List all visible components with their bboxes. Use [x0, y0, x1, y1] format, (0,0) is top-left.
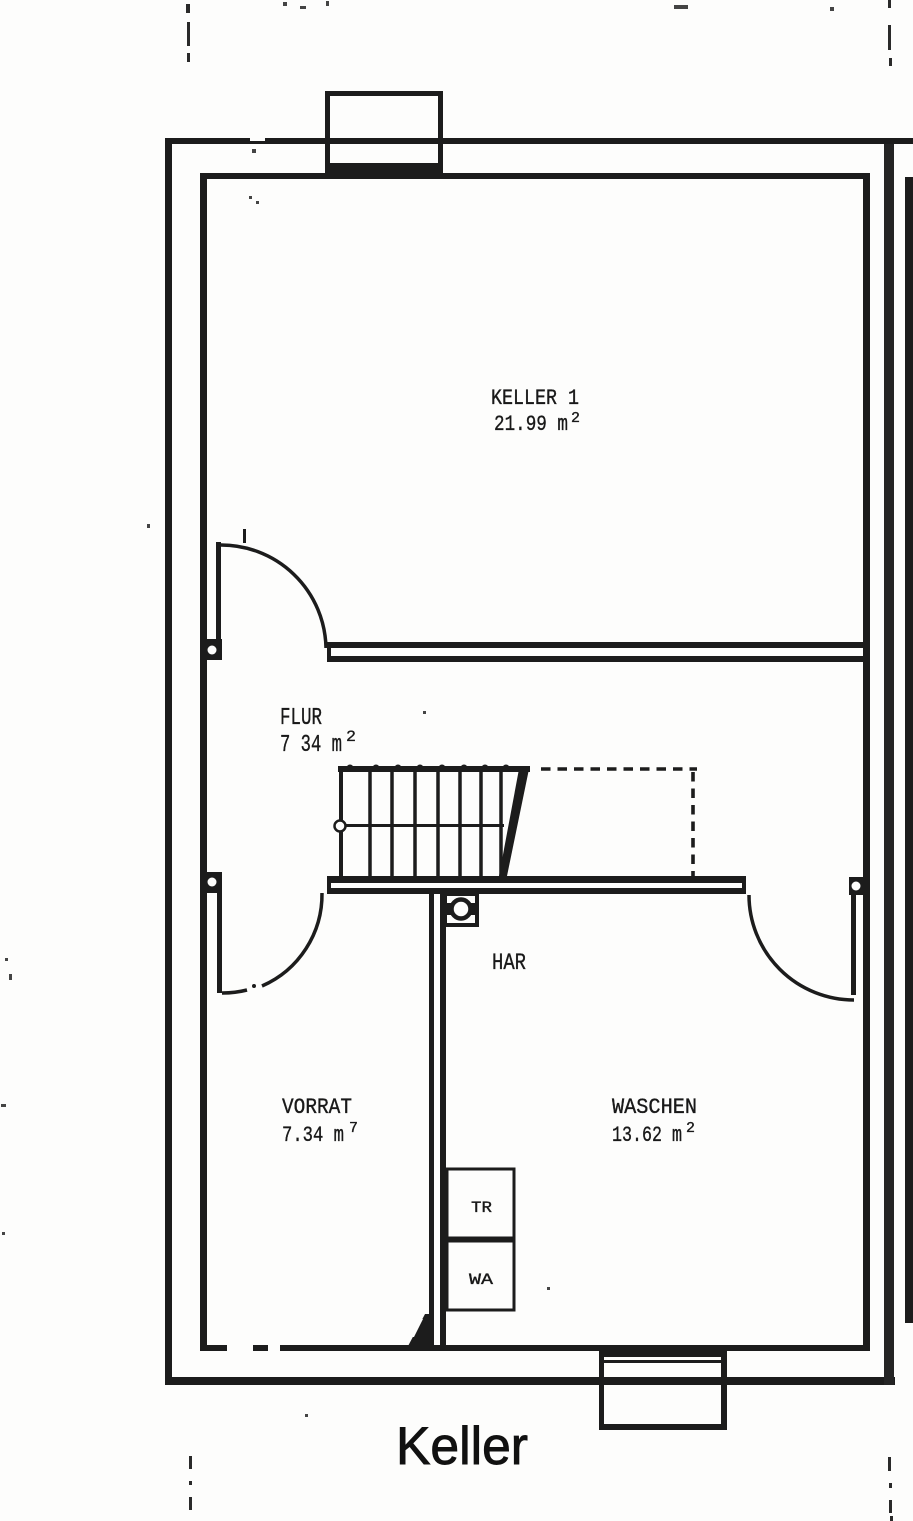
svg-text:2: 2	[686, 1120, 695, 1137]
svg-text:TR: TR	[471, 1199, 492, 1217]
svg-text:13.62 m: 13.62 m	[612, 1123, 682, 1148]
svg-text:Keller: Keller	[396, 1417, 528, 1476]
svg-text:7 34 m: 7 34 m	[280, 732, 342, 759]
svg-text:HAR: HAR	[492, 950, 526, 976]
svg-text:WA: WA	[469, 1271, 493, 1289]
svg-text:21.99 m: 21.99 m	[494, 412, 568, 437]
svg-text:7: 7	[349, 1120, 358, 1137]
svg-text:VORRAT: VORRAT	[282, 1095, 352, 1120]
svg-text:2: 2	[346, 728, 356, 746]
svg-text:2: 2	[571, 410, 580, 427]
svg-text:KELLER 1: KELLER 1	[491, 386, 579, 411]
svg-text:FLUR: FLUR	[280, 705, 322, 732]
svg-text:WASCHEN: WASCHEN	[612, 1095, 697, 1120]
svg-text:7.34 m: 7.34 m	[282, 1123, 344, 1148]
